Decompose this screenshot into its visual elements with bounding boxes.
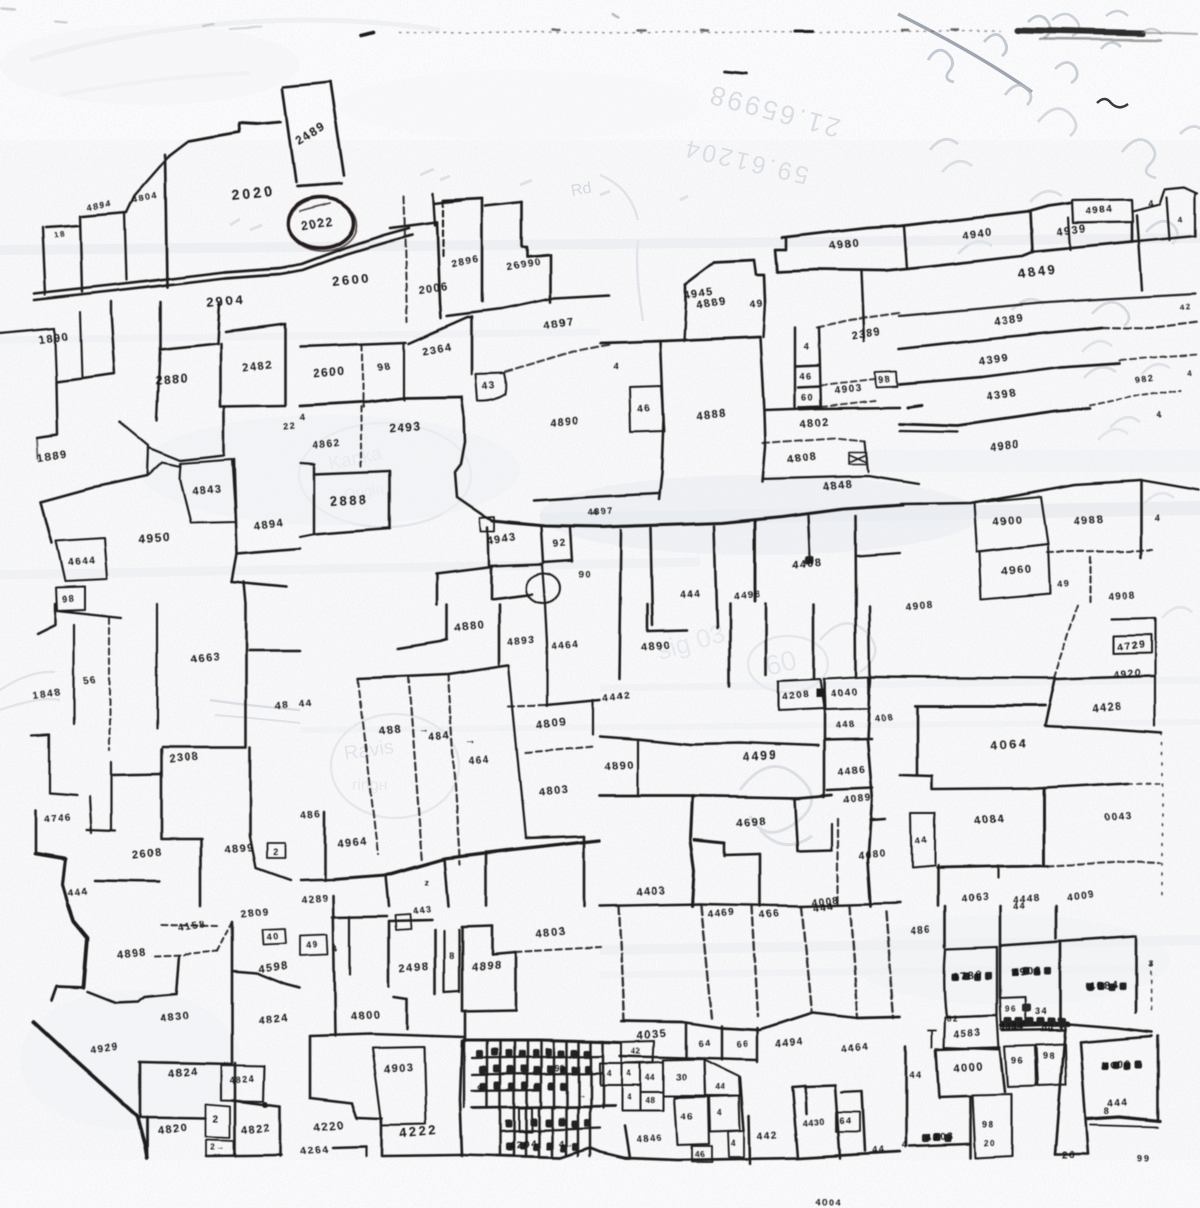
svg-text:49: 49 — [1057, 578, 1071, 589]
svg-text:64: 64 — [698, 1037, 712, 1048]
svg-text:48: 48 — [646, 1096, 656, 1105]
svg-text:44: 44 — [872, 1145, 886, 1156]
svg-text:42: 42 — [1179, 302, 1192, 312]
svg-text:40: 40 — [266, 931, 280, 942]
svg-text:486: 486 — [910, 924, 932, 937]
svg-text:4: 4 — [299, 412, 307, 423]
svg-text:→: → — [577, 1089, 588, 1099]
svg-text:4: 4 — [1155, 513, 1162, 523]
svg-text:4: 4 — [1178, 215, 1185, 225]
svg-text:4000: 4000 — [1103, 1058, 1132, 1071]
svg-text:4: 4 — [627, 1069, 633, 1078]
svg-text:443: 443 — [412, 904, 432, 916]
svg-text:90: 90 — [578, 569, 591, 579]
svg-text:4: 4 — [717, 1109, 723, 1118]
svg-text:46: 46 — [637, 404, 652, 416]
svg-text:464: 464 — [469, 754, 491, 767]
svg-text:98: 98 — [879, 373, 893, 384]
svg-text:8: 8 — [449, 951, 456, 961]
svg-text:444: 444 — [67, 886, 89, 899]
svg-text:4444: 4444 — [999, 1022, 1024, 1034]
svg-text:4: 4 — [1148, 198, 1156, 209]
svg-text:96: 96 — [1011, 1056, 1024, 1066]
svg-text:98: 98 — [981, 1120, 994, 1130]
svg-text:4: 4 — [804, 341, 811, 351]
svg-text:2600: 2600 — [313, 364, 347, 381]
svg-text:488: 488 — [378, 724, 402, 738]
svg-text:z: z — [425, 877, 431, 887]
svg-text:4203: 4203 — [925, 1131, 954, 1144]
svg-text:44: 44 — [1042, 1023, 1055, 1035]
svg-text:66: 66 — [737, 1038, 751, 1049]
svg-text:4: 4 — [627, 1093, 633, 1102]
svg-text:444: 444 — [680, 589, 702, 602]
svg-text:26: 26 — [1062, 1150, 1076, 1161]
svg-text:4846: 4846 — [636, 1133, 663, 1145]
svg-text:49: 49 — [749, 298, 764, 310]
svg-text:Rd: Rd — [570, 180, 593, 200]
svg-text:56: 56 — [83, 675, 98, 687]
svg-text:20: 20 — [984, 1139, 996, 1148]
svg-text:44: 44 — [915, 834, 929, 845]
svg-text:98: 98 — [62, 593, 76, 604]
svg-text:4499: 4499 — [741, 748, 779, 765]
svg-text:96: 96 — [1005, 1005, 1017, 1014]
svg-text:466: 466 — [759, 908, 781, 921]
svg-text:2: 2 — [273, 847, 280, 857]
svg-text:98: 98 — [1042, 1051, 1055, 1061]
svg-text:22: 22 — [283, 420, 297, 431]
svg-text:44: 44 — [715, 1083, 725, 1092]
svg-text:484: 484 — [428, 731, 452, 745]
svg-text:4: 4 — [902, 1140, 909, 1150]
svg-text:42: 42 — [632, 1047, 642, 1056]
svg-text:4→: 4→ — [558, 1139, 573, 1149]
svg-text:46: 46 — [695, 1150, 705, 1159]
svg-text:82: 82 — [947, 1015, 959, 1024]
svg-text:8: 8 — [1105, 1106, 1112, 1116]
svg-text:4950: 4950 — [138, 530, 172, 547]
svg-text:2→: 2→ — [210, 1143, 225, 1152]
svg-text:4: 4 — [1186, 368, 1193, 378]
svg-text:48: 48 — [275, 700, 290, 712]
svg-text:486: 486 — [301, 808, 323, 821]
svg-text:44: 44 — [646, 1073, 656, 1082]
svg-text:4: 4 — [613, 361, 621, 372]
svg-text:99: 99 — [1137, 1154, 1150, 1164]
svg-text:2880: 2880 — [155, 371, 189, 388]
svg-text:60: 60 — [801, 392, 814, 402]
svg-text:→: → — [557, 1111, 568, 1121]
svg-text:93: 93 — [554, 1063, 565, 1073]
svg-text:43: 43 — [482, 380, 497, 392]
svg-text:98: 98 — [377, 361, 392, 373]
svg-text:2888: 2888 — [330, 491, 370, 508]
svg-text:444: 444 — [813, 901, 835, 914]
svg-text:3: 3 — [1148, 958, 1155, 968]
svg-text:46: 46 — [799, 371, 812, 381]
svg-text:4064: 4064 — [991, 737, 1029, 754]
svg-text:4: 4 — [1157, 411, 1163, 420]
svg-text:34: 34 — [1035, 1007, 1048, 1017]
svg-text:4: 4 — [592, 508, 600, 519]
svg-text:46: 46 — [681, 1112, 694, 1122]
svg-text:44: 44 — [909, 1070, 922, 1080]
svg-text:2493: 2493 — [388, 419, 422, 436]
svg-text:49: 49 — [306, 939, 320, 950]
svg-text:9: 9 — [478, 1084, 485, 1094]
svg-text:408: 408 — [873, 712, 893, 724]
svg-text:4430: 4430 — [802, 1116, 825, 1128]
svg-text:442: 442 — [757, 1130, 779, 1142]
svg-text:4004: 4004 — [815, 1197, 841, 1207]
svg-text:44: 44 — [298, 698, 313, 710]
svg-text:4: 4 — [607, 1069, 613, 1078]
svg-text:30: 30 — [676, 1072, 687, 1082]
svg-text:4: 4 — [731, 1139, 737, 1148]
svg-text:44: 44 — [1013, 900, 1027, 911]
svg-text:2904: 2904 — [206, 292, 246, 310]
svg-text:92: 92 — [552, 537, 567, 549]
svg-text:4: 4 — [332, 944, 340, 955]
svg-text:2: 2 — [212, 1114, 219, 1125]
svg-text:64: 64 — [839, 1116, 852, 1126]
svg-text:→: → — [466, 735, 479, 747]
svg-text:448: 448 — [834, 719, 854, 731]
